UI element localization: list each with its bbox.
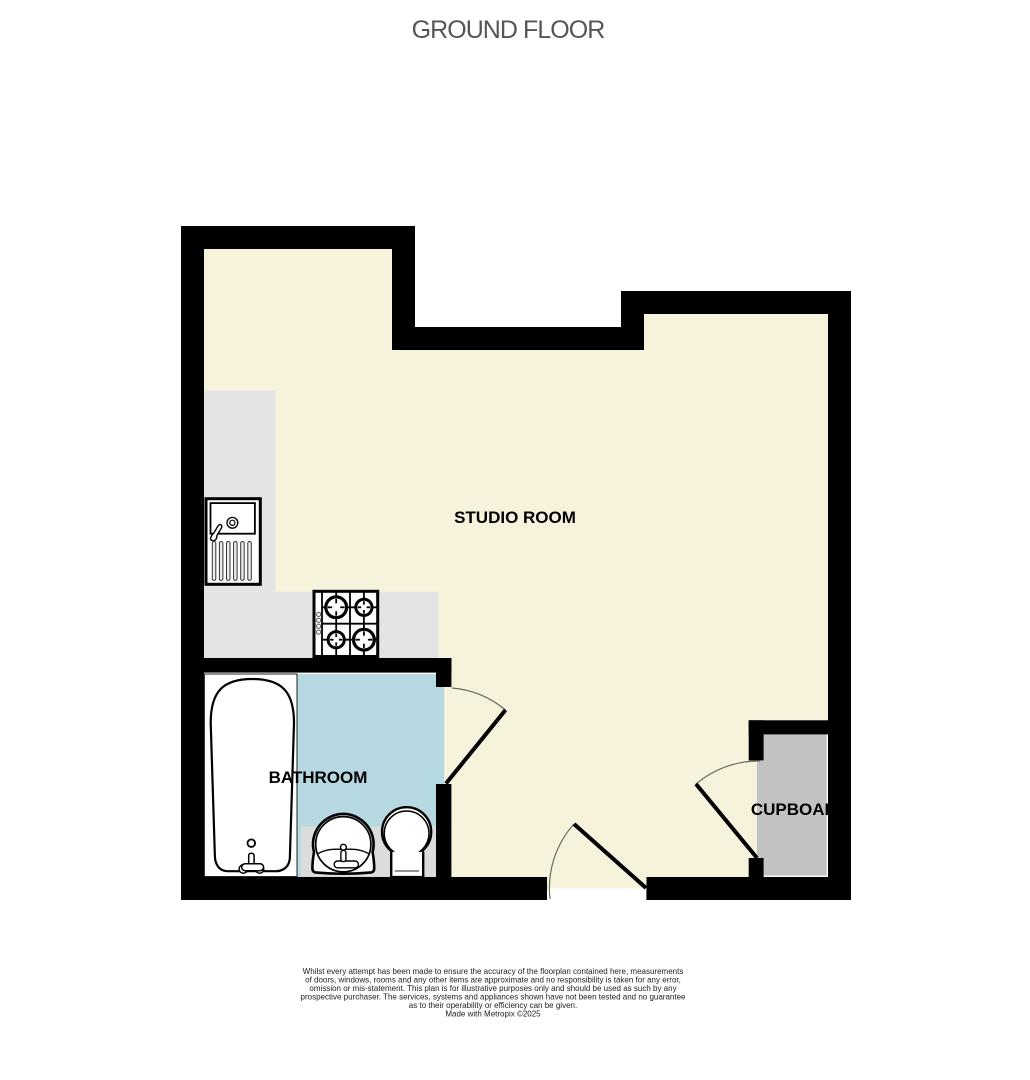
svg-text:GROUND FLOOR: GROUND FLOOR [412,16,605,44]
svg-text:Made with Metropix ©2025: Made with Metropix ©2025 [445,1010,541,1019]
svg-text:STUDIO ROOM: STUDIO ROOM [454,508,576,527]
svg-text:BATHROOM: BATHROOM [269,768,368,787]
